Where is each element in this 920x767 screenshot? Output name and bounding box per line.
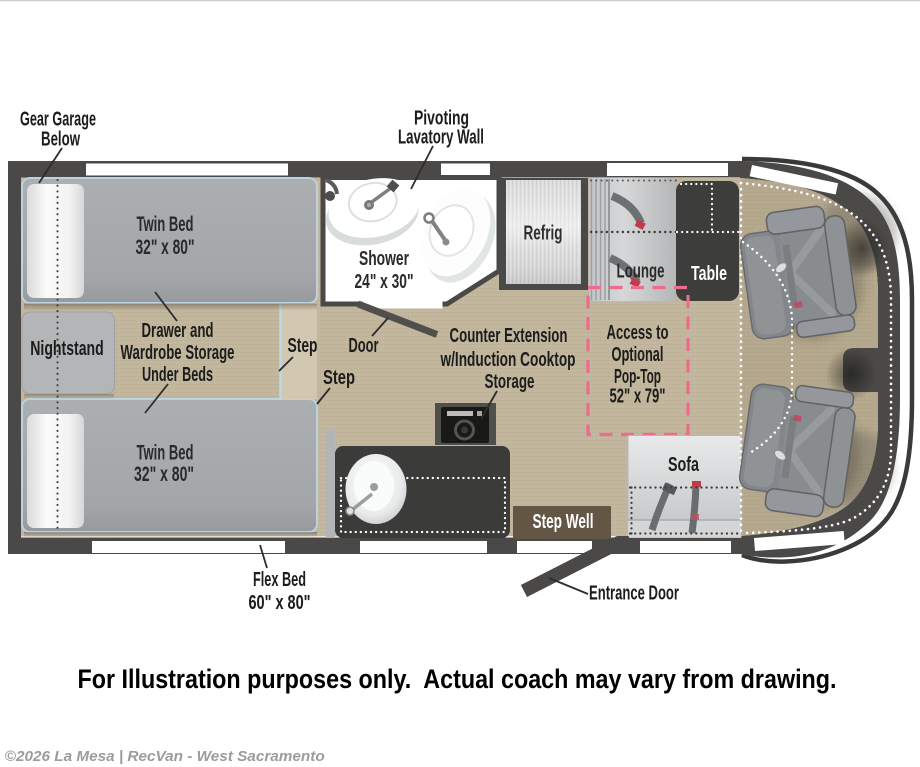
svg-text:Optional: Optional [612,344,664,366]
svg-text:32" x 80": 32" x 80" [134,463,194,486]
svg-text:52" x 79": 52" x 79" [610,386,666,408]
svg-text:Refrig: Refrig [524,223,563,245]
svg-text:60" x 80": 60" x 80" [249,592,311,614]
svg-text:Storage: Storage [485,371,535,393]
svg-text:Below: Below [41,129,80,151]
svg-text:Sofa: Sofa [668,454,700,476]
svg-text:Step Well: Step Well [533,511,594,533]
svg-text:Counter Extension: Counter Extension [450,325,568,347]
svg-text:Under Beds: Under Beds [142,364,213,386]
svg-text:Twin Bed: Twin Bed [137,213,194,236]
svg-text:Nightstand: Nightstand [30,338,104,360]
svg-text:Entrance Door: Entrance Door [589,583,679,605]
svg-text:Step: Step [288,335,318,357]
svg-text:Step: Step [323,367,355,389]
svg-text:Lounge: Lounge [617,261,665,283]
svg-text:Twin Bed: Twin Bed [137,442,194,465]
svg-text:Wardrobe Storage: Wardrobe Storage [121,342,235,364]
svg-text:Lavatory Wall: Lavatory Wall [398,127,484,149]
svg-text:Gear Garage: Gear Garage [20,109,96,131]
svg-text:Drawer and: Drawer and [142,320,214,342]
svg-text:w/Induction Cooktop: w/Induction Cooktop [440,349,576,371]
svg-text:24" x 30": 24" x 30" [355,271,414,293]
svg-text:Access to: Access to [607,322,669,344]
svg-text:Shower: Shower [359,248,409,270]
svg-text:Door: Door [349,335,379,357]
svg-text:For Illustration purposes only: For Illustration purposes only. Actual c… [78,664,837,694]
svg-text:©2026 La Mesa | RecVan - West: ©2026 La Mesa | RecVan - West Sacramento [5,748,325,765]
svg-text:Table: Table [691,263,727,285]
svg-text:Flex Bed: Flex Bed [253,569,306,591]
svg-text:32" x 80": 32" x 80" [136,236,195,259]
